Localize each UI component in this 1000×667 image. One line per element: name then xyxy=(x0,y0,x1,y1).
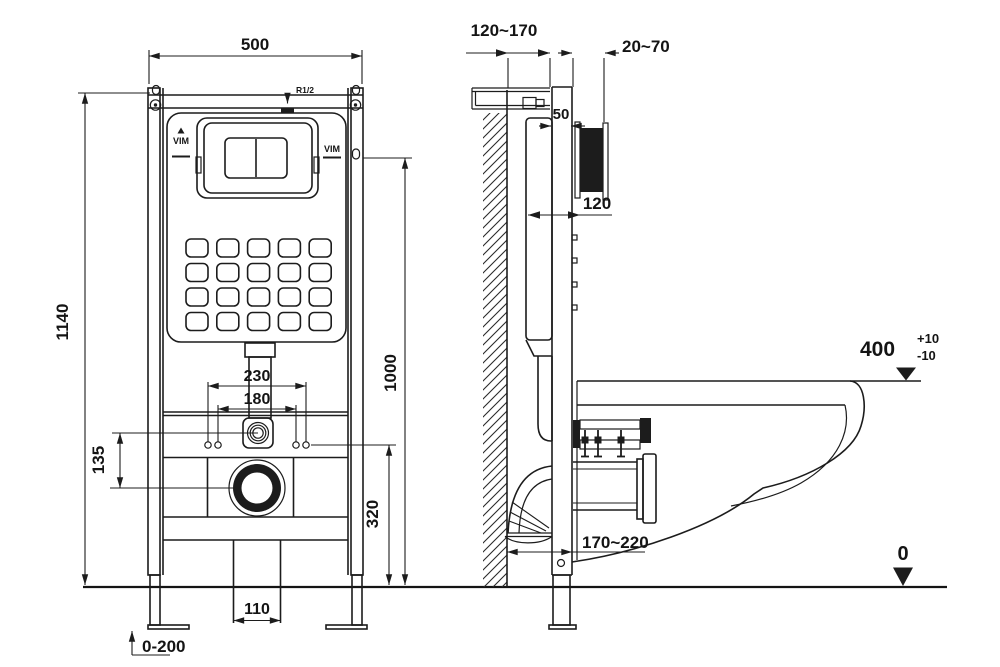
dim-text-1140: 1140 xyxy=(53,304,72,341)
drain-connector-pipe xyxy=(573,454,656,523)
dim-channel-width: 110 xyxy=(234,601,281,621)
dim-text-230: 230 xyxy=(244,368,271,385)
floor-level-marker-icon xyxy=(893,568,913,587)
toilet-frame-technical-drawing: VIM VIM 135 xyxy=(0,0,1000,667)
label-floor-level: 0 xyxy=(897,543,908,565)
grid-cell xyxy=(248,264,270,282)
grid-cell xyxy=(278,264,300,282)
dim-text-120: 120 xyxy=(583,194,611,213)
grid-cell xyxy=(278,313,300,331)
grid-cell xyxy=(278,239,300,257)
brand-triangle-icon xyxy=(178,128,185,134)
dim-inlet-offset: 135 xyxy=(89,433,258,488)
dim-frame-width: 500 xyxy=(149,35,362,84)
grid-cell xyxy=(217,239,239,257)
dim-text-170-220: 170~220 xyxy=(582,533,649,552)
dim-text-20-70: 20~70 xyxy=(622,37,670,56)
grid-cell xyxy=(217,264,239,282)
dim-text-500: 500 xyxy=(241,35,269,54)
wall-hatch xyxy=(483,90,507,587)
cistern-side xyxy=(526,118,552,441)
side-leg xyxy=(549,575,576,629)
dim-bolt-inner: 180 xyxy=(218,391,296,409)
dim-text-110: 110 xyxy=(244,601,270,618)
drain-outlet xyxy=(229,460,285,516)
dim-text-120-170: 120~170 xyxy=(471,21,538,40)
dim-text-0-200: 0-200 xyxy=(142,637,185,656)
front-view-drawing: VIM VIM 135 xyxy=(53,35,412,656)
grid-cell xyxy=(309,239,331,257)
dim-text-400: 400 xyxy=(860,338,895,361)
dim-text-50: 50 xyxy=(553,106,570,123)
grid-cell xyxy=(186,313,208,331)
label-inlet-thread: R1/2 xyxy=(296,85,314,95)
drain-elbow xyxy=(505,466,552,543)
grid-cell xyxy=(217,288,239,306)
cistern xyxy=(167,113,346,342)
grid-cell xyxy=(186,239,208,257)
dim-text-320: 320 xyxy=(363,500,382,528)
dim-text-plus10: +10 xyxy=(917,331,939,346)
grid-cell xyxy=(248,288,270,306)
water-supply-connection: R1/2 xyxy=(281,85,314,114)
grid-cell xyxy=(186,288,208,306)
grid-cell xyxy=(309,264,331,282)
grid-cell xyxy=(217,313,239,331)
seat-level-marker-icon xyxy=(896,368,916,381)
drawing-sheet: VIM VIM 135 xyxy=(0,0,1000,667)
grid-cell xyxy=(309,288,331,306)
grid-cell xyxy=(309,313,331,331)
dim-bolt-outer: 230 xyxy=(208,368,306,386)
flush-plate-housing xyxy=(575,122,608,200)
dim-text-1000: 1000 xyxy=(381,354,400,392)
dim-text-180: 180 xyxy=(244,391,271,408)
grid-cell xyxy=(278,288,300,306)
grid-cell xyxy=(186,264,208,282)
wall-anchor-bracket xyxy=(472,88,550,109)
grid-cell xyxy=(248,239,270,257)
dim-drain-height: 320 xyxy=(311,445,396,585)
mounting-grid xyxy=(186,239,331,331)
dim-finish-thickness: 20~70 xyxy=(558,37,670,122)
frame-rail-side xyxy=(552,87,577,575)
inlet-connector-assembly xyxy=(573,418,651,457)
dim-feet-range: 0-200 xyxy=(132,631,185,656)
brand-logo-right: VIM xyxy=(323,144,341,158)
side-view-drawing: 120~170 20~70 50 120 xyxy=(466,21,939,629)
dim-plate-depth: 120 xyxy=(528,194,612,219)
dim-text-minus10: -10 xyxy=(917,348,936,363)
brand-text: VIM xyxy=(324,144,340,154)
dim-frame-depth: 120~170 xyxy=(466,21,550,88)
dim-frame-height: 1140 xyxy=(53,93,150,585)
floor-level-datum: 0 xyxy=(893,543,913,586)
brand-text: VIM xyxy=(173,136,189,146)
dim-text-135: 135 xyxy=(89,446,108,474)
grid-cell xyxy=(248,313,270,331)
dim-seat-height: 400 +10 -10 xyxy=(860,331,939,381)
brand-logo-left: VIM xyxy=(172,128,190,157)
